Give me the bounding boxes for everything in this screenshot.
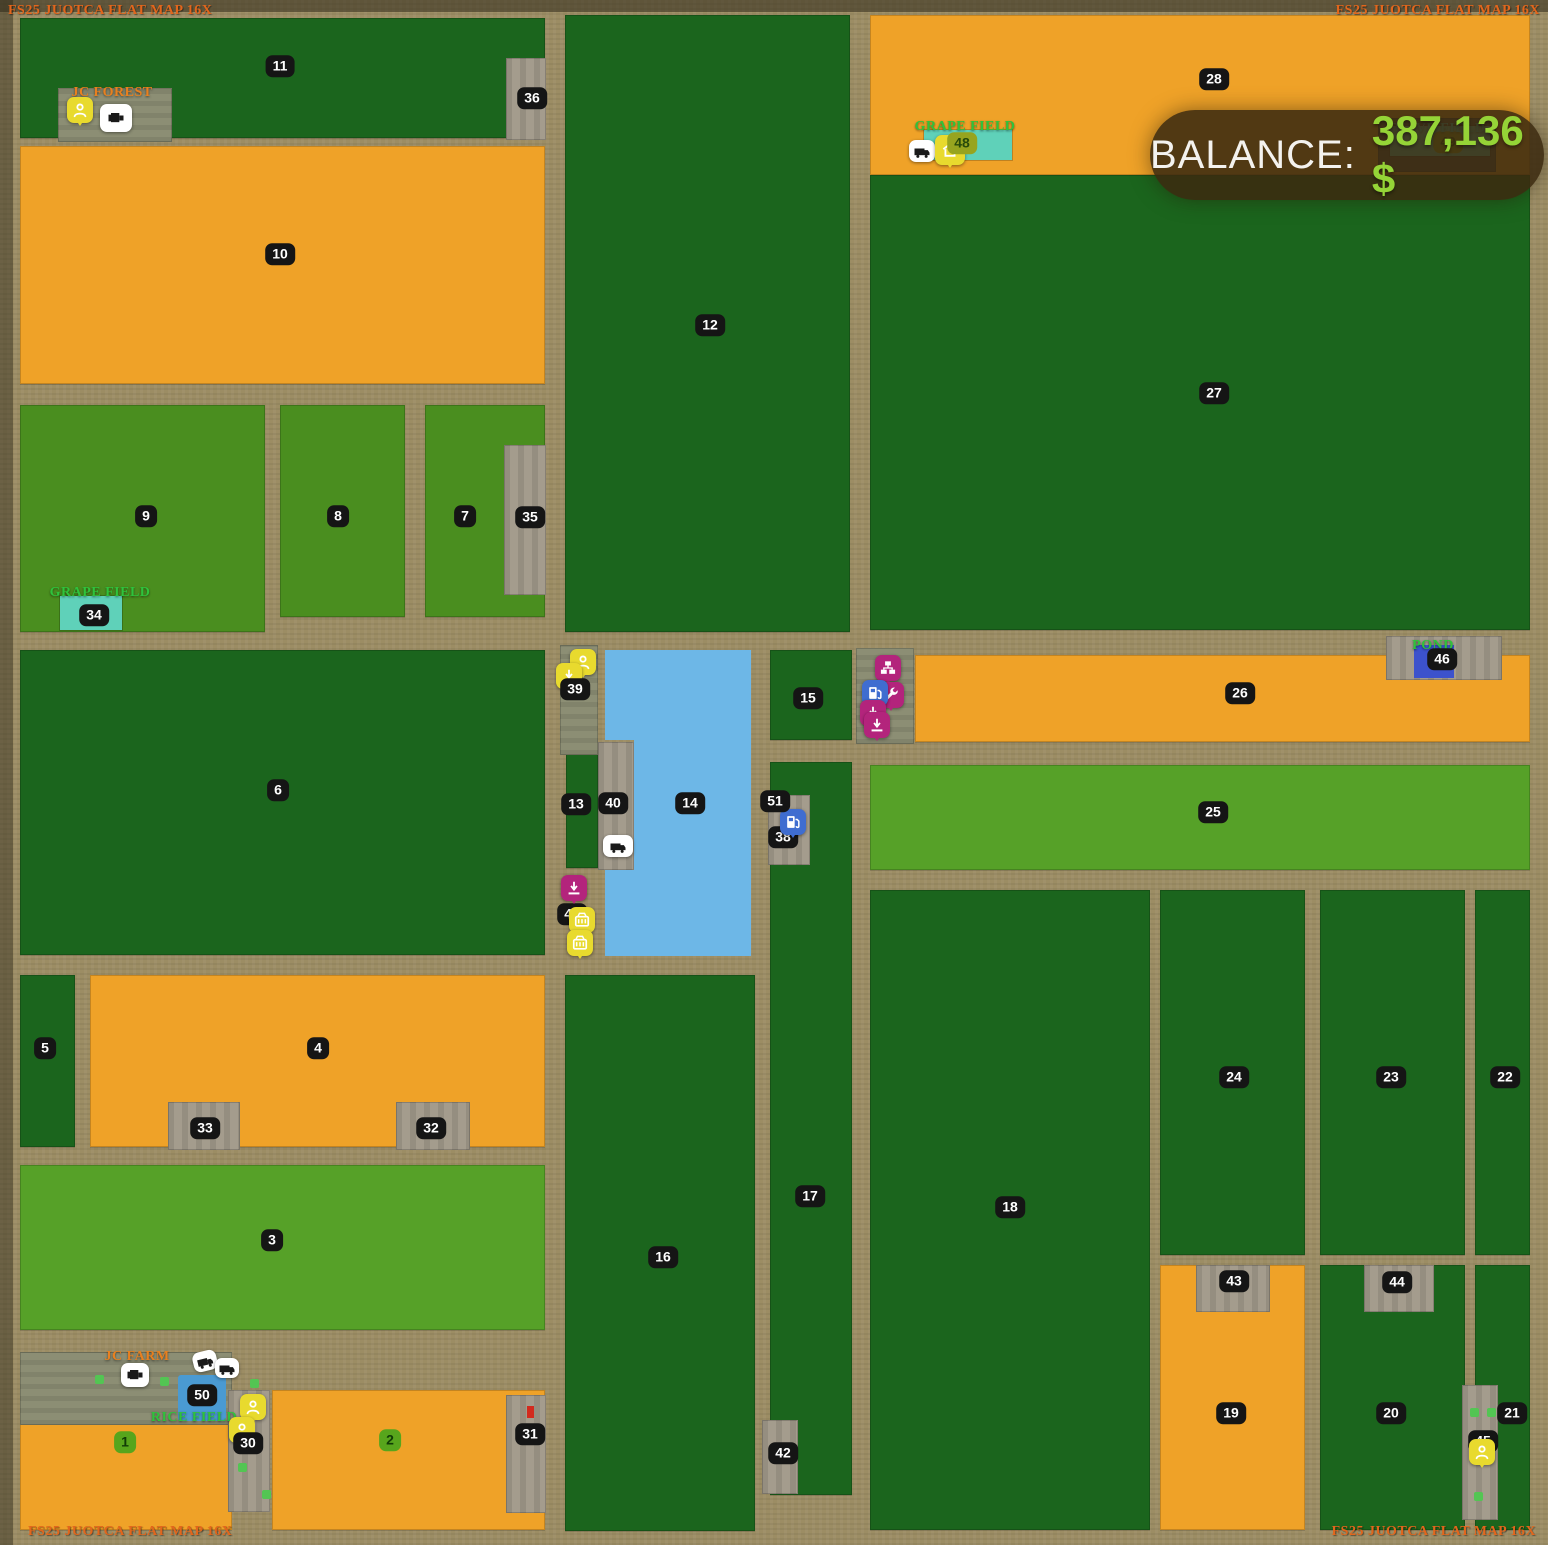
field-badge-46: 46 [1427,648,1457,670]
red-marker [527,1406,534,1418]
field-17[interactable] [770,762,852,1495]
balance-amount: 387,136 $ [1372,107,1544,203]
green-marker [238,1463,247,1472]
field-4[interactable] [90,975,545,1147]
field-badge-31: 31 [515,1423,545,1445]
field-badge-28: 28 [1199,68,1229,90]
field-badge-14: 14 [675,792,705,814]
field-badge-2: 2 [379,1429,401,1451]
field-badge-8: 8 [327,505,349,527]
harvester-icon [100,104,132,132]
field-badge-51: 51 [760,790,790,812]
game-map-screen: { "watermark": "FS25 JUOTCA FLAT MAP 16X… [0,0,1548,1545]
field-badge-3: 3 [261,1229,283,1251]
field-5[interactable] [20,975,75,1147]
green-marker [1474,1492,1483,1501]
green-marker [95,1375,104,1384]
basket-icon [567,930,593,956]
field-badge-12: 12 [695,314,725,336]
field-badge-11: 11 [266,55,295,77]
field-badge-17: 17 [795,1185,825,1207]
balance-label: BALANCE: [1150,133,1356,178]
field-10[interactable] [20,146,545,384]
truck-icon [909,140,935,162]
field-badge-27: 27 [1199,382,1229,404]
green-marker [1487,1408,1496,1417]
map-watermark-bottom-left: FS25 JUOTCA FLAT MAP 16X [28,1524,232,1540]
field-badge-15: 15 [793,687,823,709]
truck-icon [215,1358,239,1378]
unload-point-icon [864,712,890,738]
field-badge-35: 35 [515,506,545,528]
field-badge-4: 4 [307,1037,329,1059]
green-marker [250,1379,259,1388]
unload-point-icon [561,875,587,901]
field-badge-16: 16 [648,1246,678,1268]
map-watermark-top-left: FS25 JUOTCA FLAT MAP 16X [8,3,212,19]
field-14-water[interactable] [605,650,751,740]
player-icon [67,97,93,123]
field-badge-32: 32 [416,1117,446,1139]
label-rice-field: RICE FIELD [151,1410,237,1426]
label-grape-field-left: GRAPE FIELD [50,585,151,601]
field-badge-40: 40 [598,792,628,814]
field-badge-50: 50 [187,1384,217,1406]
field-badge-23: 23 [1376,1066,1406,1088]
field-badge-7: 7 [454,505,476,527]
field-badge-6: 6 [267,779,289,801]
field-badge-21: 21 [1497,1402,1527,1424]
map-edge-shadow-top [0,0,1548,12]
production-point-icon [875,655,901,681]
field-badge-42: 42 [768,1442,798,1464]
green-marker [160,1377,169,1386]
field-badge-43: 43 [1219,1270,1249,1292]
field-27[interactable] [870,175,1530,630]
field-badge-25: 25 [1198,801,1228,823]
structure-31 [506,1395,546,1513]
map-edge-shadow-left [0,0,13,1545]
field-3[interactable] [20,1165,545,1330]
map-watermark-bottom-right: FS25 JUOTCA FLAT MAP 16X [1332,1524,1536,1540]
field-2[interactable] [272,1390,545,1530]
field-badge-13: 13 [561,793,591,815]
field-badge-33: 33 [190,1117,220,1139]
field-14-water[interactable] [605,867,751,956]
field-badge-20: 20 [1376,1402,1406,1424]
fuel-station-icon [780,809,806,835]
field-badge-5: 5 [34,1037,56,1059]
field-badge-10: 10 [265,243,295,265]
player-icon [1469,1439,1495,1465]
field-badge-9: 9 [135,505,157,527]
green-marker [1470,1408,1479,1417]
field-badge-19: 19 [1216,1402,1246,1424]
field-badge-36: 36 [517,87,547,109]
harvester-icon [121,1363,149,1387]
balance-panel: BALANCE: 387,136 $ [1150,110,1544,200]
field-badge-24: 24 [1219,1066,1249,1088]
field-badge-26: 26 [1225,682,1255,704]
field-badge-48: 48 [947,132,977,154]
field-6[interactable] [20,650,545,955]
field-badge-30: 30 [233,1432,263,1454]
field-badge-39: 39 [560,678,590,700]
field-badge-18: 18 [995,1196,1025,1218]
map-watermark-top-right: FS25 JUOTCA FLAT MAP 16X [1336,3,1540,19]
field-badge-34: 34 [79,604,109,626]
field-badge-22: 22 [1490,1066,1520,1088]
truck-icon [603,835,633,857]
green-marker [262,1490,271,1499]
field-badge-44: 44 [1382,1271,1412,1293]
field-badge-1: 1 [114,1431,136,1453]
